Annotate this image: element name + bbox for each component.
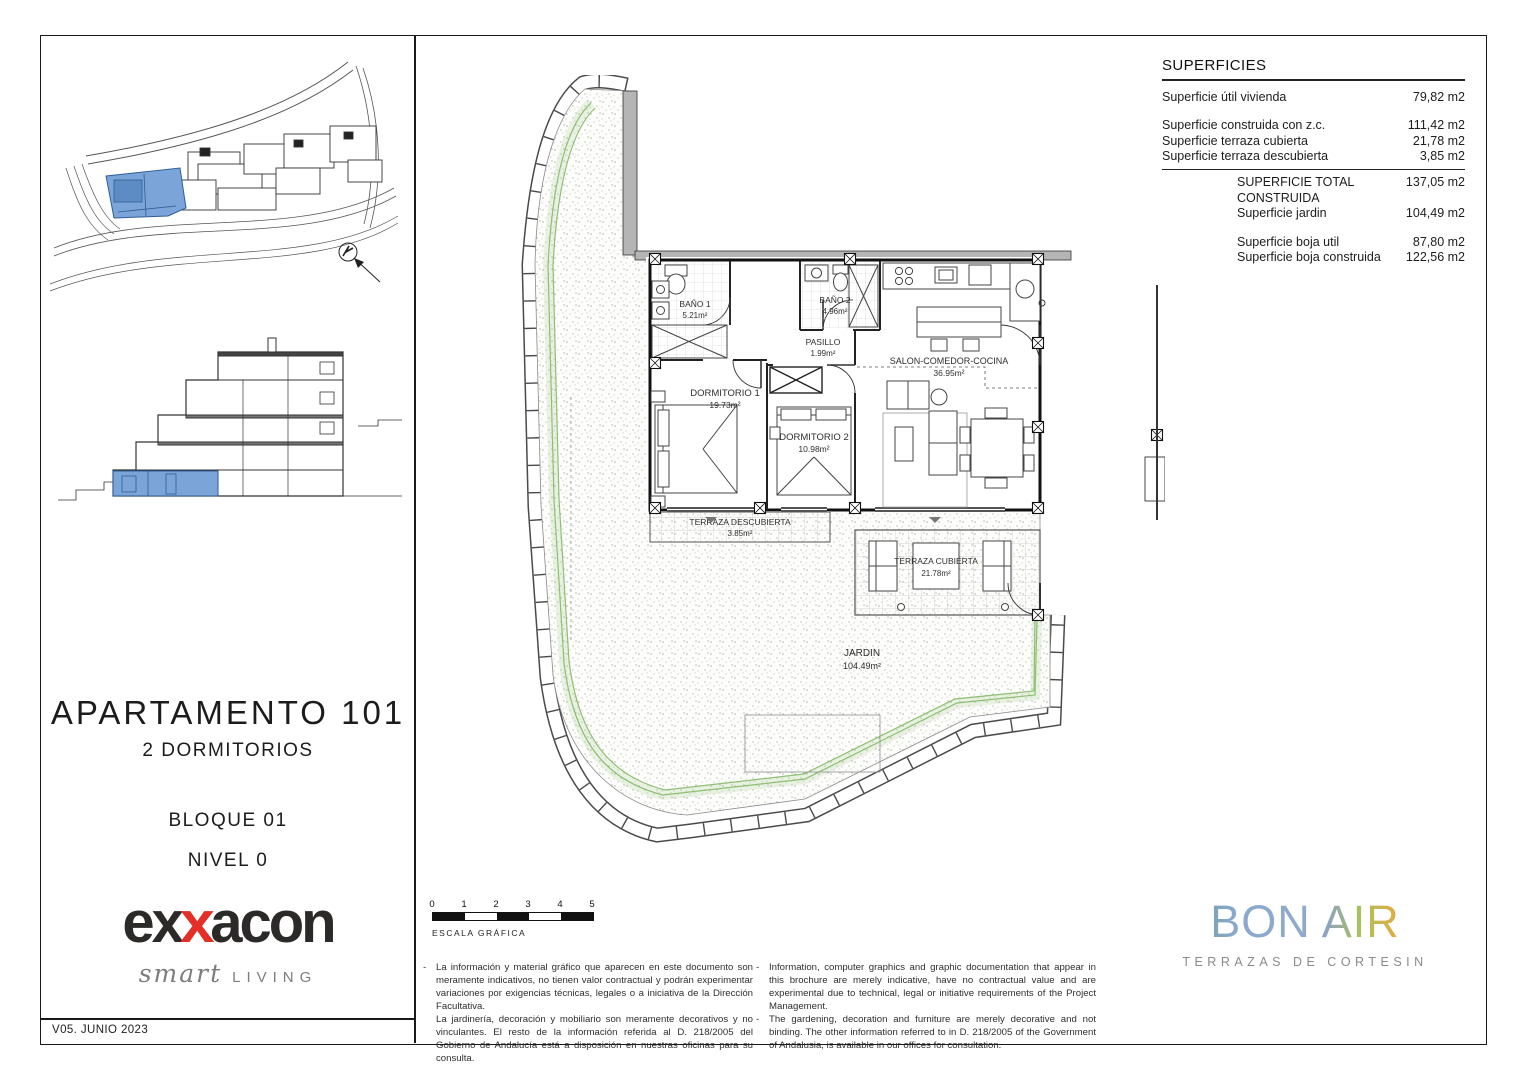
room-area-terraza-cubierta: 21.78m² <box>921 569 951 578</box>
section-highlighted-level <box>113 471 218 496</box>
retaining-wall-vertical <box>623 91 637 255</box>
superficies-row: Superficie útil vivienda79,82 m2 <box>1162 90 1465 106</box>
superficies-row: Superficie boja construida122,56 m2 <box>1162 250 1465 266</box>
room-label-bano2: BAÑO 2 <box>819 295 850 305</box>
bullet-dash: - <box>756 961 769 1013</box>
room-label-terraza-descubierta: TERRAZA DESCUBIERTA <box>689 517 791 527</box>
right-access <box>1039 285 1165 520</box>
disclaimer-es-p2: La jardinería, decoración y mobiliario s… <box>436 1013 753 1065</box>
bathroom-1: BAÑO 1 5.21m² <box>652 262 729 358</box>
room-label-pasillo: PASILLO <box>806 337 841 347</box>
terraza-cubierta: TERRAZA CUBIERTA 21.78m² <box>855 530 1040 615</box>
scale-bar-ticks: 0 1 2 3 4 5 <box>432 899 602 911</box>
title-block: APARTAMENTO 101 2 DORMITORIOS BLOQUE 01 … <box>41 694 415 872</box>
room-area-salon: 36.95m² <box>933 368 964 378</box>
scale-bar-segments <box>432 912 594 921</box>
disclaimer-spanish: - La información y material gráfico que … <box>423 961 753 1065</box>
room-area-pasillo: 1.99m² <box>811 349 836 358</box>
column-divider <box>414 35 416 1043</box>
disclaimer-en-p2: The gardening, decoration and furniture … <box>769 1013 1096 1052</box>
room-area-jardin: 104.49m² <box>843 661 881 671</box>
superficies-row: Superficie jardin104,49 m2 <box>1162 206 1465 222</box>
room-area-bano2: 4.96m² <box>823 307 848 316</box>
brochure-page: V05. JUNIO 2023 <box>0 0 1527 1080</box>
floor-plan-drawing: JARDIN 104.49m² TERRAZA DESCUBIERTA 3.85… <box>505 75 1165 855</box>
exxacon-tagline: smartLIVING <box>41 959 415 988</box>
superficies-row: Superficie terraza descubierta3,85 m2 <box>1162 149 1465 165</box>
room-area-dormitorio2: 10.98m² <box>798 444 829 454</box>
site-plan-drawing <box>48 56 400 300</box>
room-area-terraza-descubierta: 3.85m² <box>728 529 753 538</box>
disclaimer-es-p1: La información y material gráfico que ap… <box>436 961 753 1013</box>
superficies-row: Superficie boja util87,80 m2 <box>1162 235 1465 251</box>
superficies-row: Superficie construida con z.c.111,42 m2 <box>1162 118 1465 134</box>
bedroom-2: DORMITORIO 2 10.98m² <box>770 407 851 495</box>
apartment-subtitle: 2 DORMITORIOS <box>41 740 415 762</box>
version-stamp: V05. JUNIO 2023 <box>52 1024 148 1036</box>
exxacon-wordmark: exxacon <box>41 893 415 953</box>
room-label-dormitorio2: DORMITORIO 2 <box>779 432 849 443</box>
bonair-logo: BON AIR TERRAZAS DE CORTESIN <box>1180 898 1430 969</box>
scale-bar-label: ESCALA GRÁFICA <box>432 928 602 938</box>
superficies-rule <box>1162 169 1465 171</box>
room-label-bano1: BAÑO 1 <box>679 299 710 309</box>
room-area-dormitorio1: 19.73m² <box>709 400 740 410</box>
disclaimer-en-p1: Information, computer graphics and graph… <box>769 961 1096 1013</box>
scale-bar: 0 1 2 3 4 5 ESCALA GRÁFICA <box>432 899 602 938</box>
building-section-drawing <box>58 330 402 522</box>
superficies-rule <box>1162 79 1465 81</box>
level-label: NIVEL 0 <box>41 850 415 872</box>
superficies-table: SUPERFICIES Superficie útil vivienda79,8… <box>1162 57 1465 266</box>
disclaimer-english: - Information, computer graphics and gra… <box>756 961 1096 1052</box>
bullet-dash: - <box>423 961 436 1013</box>
room-label-dormitorio1: DORMITORIO 1 <box>690 388 760 399</box>
exxacon-logo: exxacon smartLIVING <box>41 893 415 988</box>
superficies-row: Superficie terraza cubierta21,78 m2 <box>1162 134 1465 150</box>
bonair-wordmark: BON AIR <box>1180 898 1430 946</box>
room-area-bano1: 5.21m² <box>683 311 708 320</box>
bonair-subtitle: TERRAZAS DE CORTESIN <box>1180 955 1430 969</box>
room-label-jardin: JARDIN <box>844 648 880 659</box>
north-arrow-icon <box>339 243 380 282</box>
exxacon-accent-x: x <box>180 893 212 953</box>
bathroom-2: BAÑO 2 4.96m² <box>801 262 879 329</box>
superficies-total-row: SUPERFICIE TOTAL CONSTRUIDA137,05 m2 <box>1162 175 1465 206</box>
version-box-line <box>40 1018 416 1020</box>
wardrobe <box>770 367 822 393</box>
terraza-descubierta: TERRAZA DESCUBIERTA 3.85m² <box>650 512 830 542</box>
block-label: BLOQUE 01 <box>41 810 415 832</box>
site-highlighted-block <box>106 168 186 218</box>
bullet-dash: - <box>756 1013 769 1052</box>
apartment-title: APARTAMENTO 101 <box>41 694 415 732</box>
superficies-heading: SUPERFICIES <box>1162 57 1465 74</box>
room-label-salon: SALON-COMEDOR-COCINA <box>890 356 1009 366</box>
room-label-terraza-cubierta: TERRAZA CUBIERTA <box>894 556 978 566</box>
